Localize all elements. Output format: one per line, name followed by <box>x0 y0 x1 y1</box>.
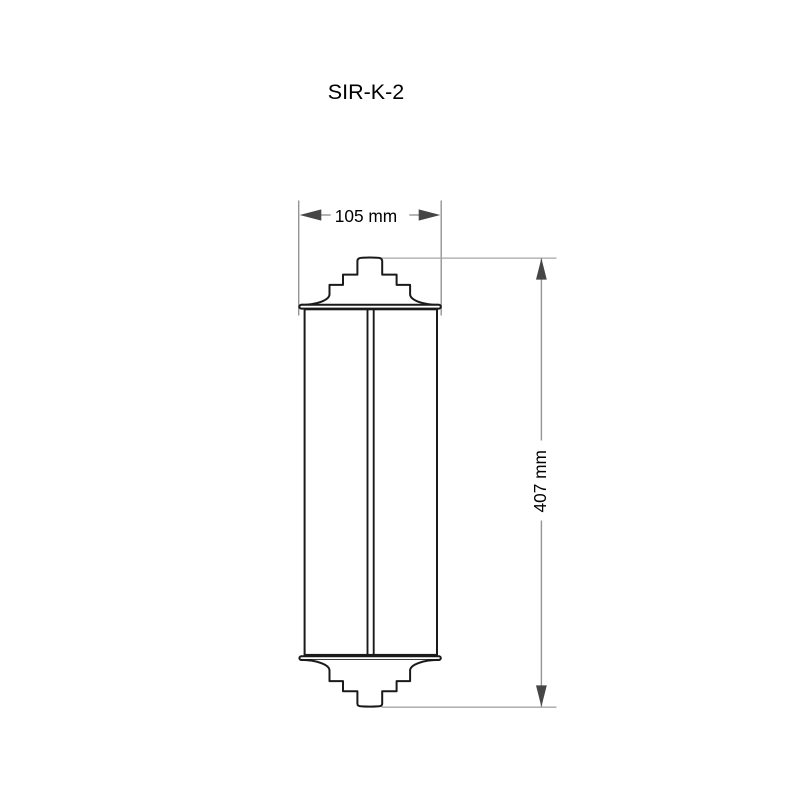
svg-text:105 mm: 105 mm <box>335 206 397 226</box>
svg-text:407 mm: 407 mm <box>530 450 550 512</box>
svg-text:SIR-K-2: SIR-K-2 <box>328 80 404 104</box>
